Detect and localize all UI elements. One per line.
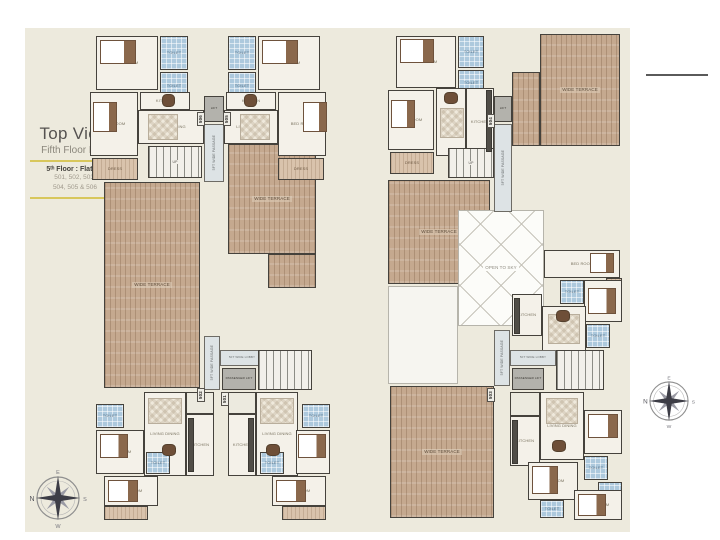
- bed-icon: [391, 100, 415, 128]
- kitchen-counter-icon: [512, 420, 518, 464]
- room-label: OPEN TO SKY: [483, 265, 518, 270]
- room-label: UP: [467, 161, 474, 165]
- room-label: 5FT WIDE PASSAGE: [501, 150, 505, 185]
- passenger-lift: PASSENGER LIFT: [512, 368, 544, 390]
- right-floor-plan: WIDE TERRACEWIDE TERRACEWIDE TERRACEOPEN…: [0, 0, 720, 540]
- wide-terrace: WIDE TERRACE: [390, 386, 494, 518]
- toilet: TOILET: [586, 324, 610, 348]
- room-label: TOILET: [545, 507, 560, 512]
- compass-rose-icon: N E S W: [640, 372, 698, 430]
- room-label: DRESS: [405, 161, 419, 166]
- room-label: WIDE TERRACE: [560, 87, 600, 92]
- compass-w-label: W: [55, 524, 61, 530]
- bed-icon: [578, 494, 606, 516]
- room-label: 504: [488, 117, 493, 125]
- bed-icon: [400, 39, 434, 63]
- 5ft-wide-passage: 5FT WIDE PASSAGE: [494, 124, 512, 212]
- room-label: KITCHEN: [518, 313, 536, 318]
- up: UP: [448, 148, 494, 178]
- bed-icon: [588, 288, 616, 314]
- 503: 503: [487, 388, 495, 402]
- room-label: TOILET: [464, 81, 479, 86]
- wide-terrace: WIDE TERRACE: [540, 34, 620, 146]
- dress: DRESS: [390, 152, 434, 174]
- room-label: KITCHEN: [516, 439, 534, 444]
- room-label: LIFT: [500, 107, 507, 110]
- kitchen-counter-icon: [514, 298, 520, 334]
- 5ft-wide-passage: 5FT WIDE PASSAGE: [494, 330, 510, 386]
- rug-icon: [440, 108, 464, 138]
- compass-cardinal-star: [649, 381, 689, 421]
- open-area: [388, 286, 458, 384]
- room-label: WIDE TERRACE: [422, 449, 462, 454]
- 504: 504: [487, 114, 495, 128]
- room-label: PASSENGER LIFT: [515, 377, 542, 380]
- toilet: TOILET: [584, 456, 608, 480]
- compass-e-label: E: [56, 470, 60, 476]
- dining-table-icon: [556, 310, 570, 322]
- toilet: TOILET: [540, 500, 564, 518]
- dining-table-icon: [552, 440, 566, 452]
- room-label: 5FT WIDE PASSAGE: [500, 340, 504, 375]
- compass-s-label: S: [692, 400, 696, 406]
- room-label: WIDE TERRACE: [419, 229, 459, 234]
- room-label: TOILET: [589, 466, 604, 471]
- bed-icon: [590, 253, 614, 273]
- compass-n-label: N: [29, 496, 34, 503]
- toilet: TOILET: [560, 280, 584, 304]
- 5ft-wide-lobby: 5FT WIDE LOBBY: [510, 350, 556, 366]
- lift: LIFT: [494, 96, 512, 122]
- compass-s-label: S: [83, 497, 87, 503]
- room-label: 503: [488, 391, 493, 399]
- compass-e-label: E: [667, 375, 671, 381]
- bed-icon: [588, 414, 618, 438]
- room-label: 5FT WIDE LOBBY: [520, 356, 546, 359]
- floor-plan-sheet: Top View Fifth Floor Plan 5ᵗʰ Floor : Fl…: [0, 0, 720, 540]
- room-label: LIVING DINING: [547, 424, 577, 429]
- bed-icon: [532, 466, 558, 494]
- compass-w-label: W: [667, 424, 672, 430]
- rug-icon: [546, 398, 578, 424]
- foyer: [510, 392, 540, 416]
- compass-rose-icon: N E S W: [26, 466, 90, 530]
- wood-terrace: [512, 72, 540, 146]
- compass-n-label: N: [643, 399, 648, 406]
- dining-table-icon: [444, 92, 458, 104]
- toilet: TOILET: [458, 36, 484, 68]
- room-label: TOILET: [565, 290, 580, 295]
- staircase: [556, 350, 604, 390]
- room-label: TOILET: [591, 334, 606, 339]
- room-label: TOILET: [464, 50, 479, 55]
- compass-cardinal-star: [36, 476, 80, 520]
